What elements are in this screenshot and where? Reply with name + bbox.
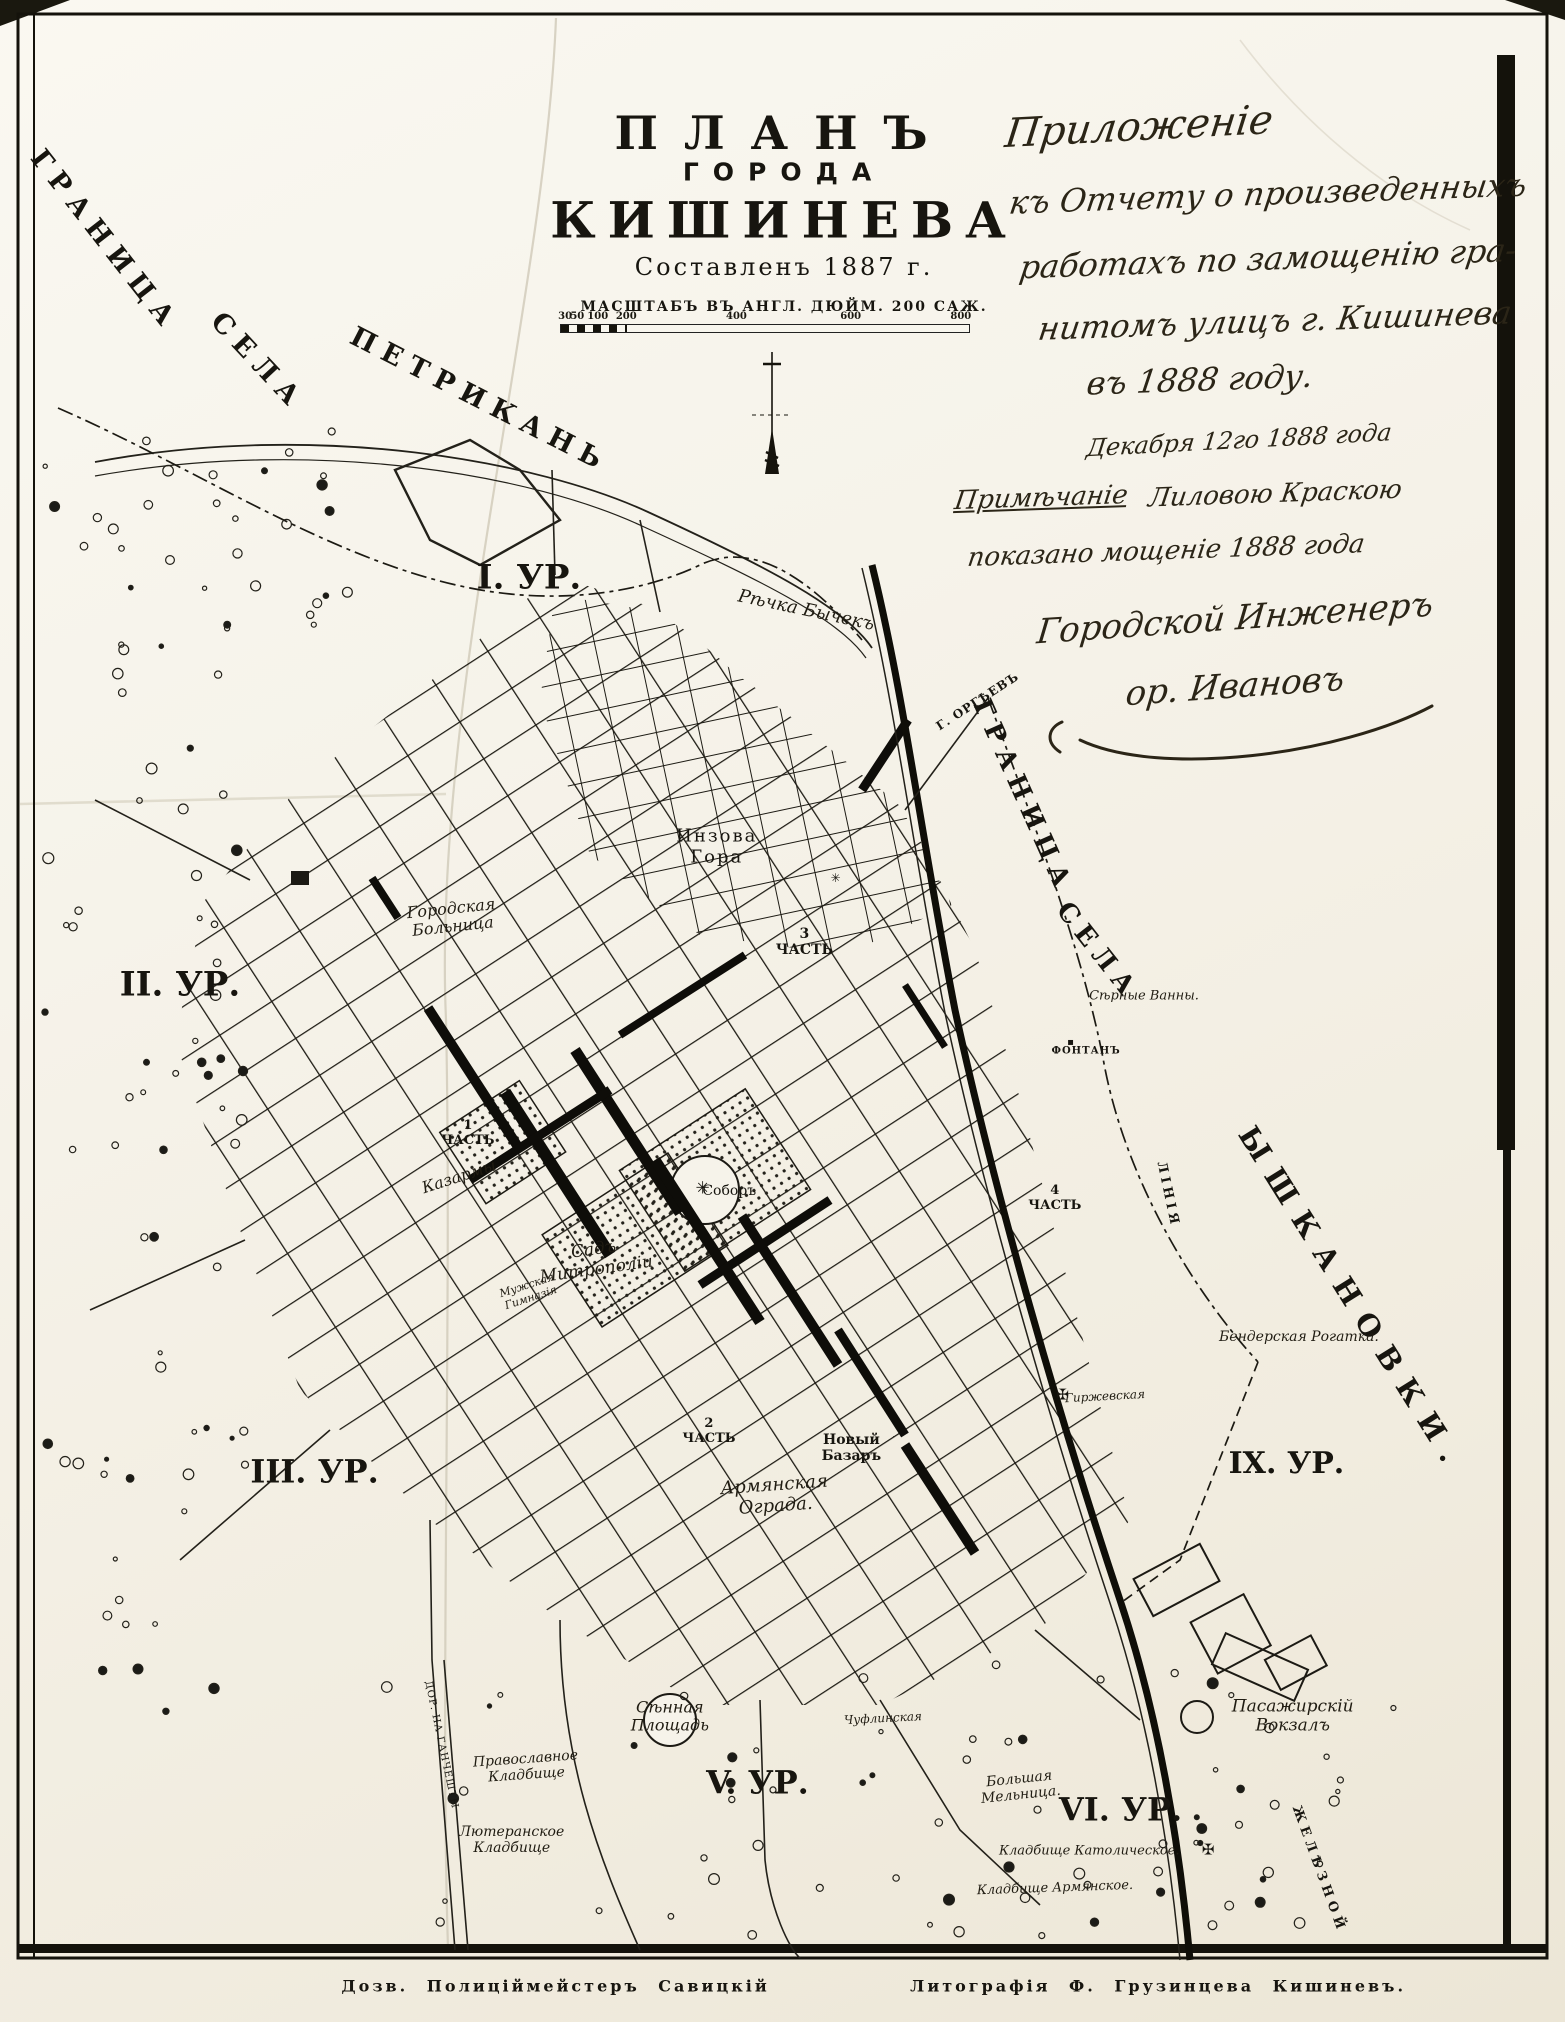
label-district-2: II. УР.	[120, 965, 240, 1004]
fountain-dot-icon: ▪	[1067, 1038, 1074, 1048]
label-granitsa-petrikan-1: ГРАНИЦА	[24, 143, 186, 338]
label-sobor: Соборъ	[702, 1183, 756, 1199]
label-gorodskaya-bolnitsa: Городская Больница	[406, 895, 498, 941]
blagoveshchenskaya-cross-icon: ✳	[831, 872, 841, 884]
label-pasazhirsky-vokzal: Пасажирскій Вокзалъ	[1232, 1697, 1354, 1736]
label-kladbishche-katolicheskoye: Кладбище Католическое.	[999, 1845, 1180, 1860]
label-district-5: V. УР.	[706, 1765, 809, 1802]
label-pravoslavnoye-kladbishche: Православное Кладбище	[472, 1747, 579, 1786]
label-3-chast: 3 ЧАСТЬ	[776, 926, 833, 958]
label-benderskaya-rogatka: Бендерская Рогатка.	[1219, 1328, 1379, 1344]
map-scan-page: ПЛАНЪ ГОРОДА КИШИНЕВА Составленъ 1887 г.…	[0, 0, 1565, 2022]
label-2-chast: 2 ЧАСТЬ	[682, 1417, 735, 1447]
label-liniya: ЛІНІЯ	[1153, 1160, 1182, 1229]
label-bolshaya-melnitsa: Большая Мельница.	[979, 1767, 1062, 1807]
label-kladbishche-armyanskoye: Кладбище Армянское.	[976, 1878, 1133, 1898]
caption-policemaster: Дозв. Полиціймейстеръ Савицкій	[341, 1976, 769, 1995]
label-dor-na-gancheshty: ДОР. НА ГАНЧЕШТЫ	[422, 1680, 460, 1810]
label-district-1: I. УР.	[477, 559, 582, 598]
label-granitsa-sela-1: ГРАНИЦА	[966, 695, 1079, 899]
label-girzhevskaya: Гиржевская	[1065, 1388, 1146, 1406]
label-district-9: IX. УР.	[1229, 1447, 1345, 1482]
label-syennaya-ploshchad: Сѣнная Площадь	[631, 1698, 709, 1735]
label-yshkanovki: ЫШКАНОВКИ.	[1231, 1121, 1473, 1480]
label-district-3: III. УР.	[250, 1454, 378, 1491]
label-1-chast: 1 ЧАСТЬ	[441, 1119, 494, 1149]
label-armyanskaya-ograda: Армянская Ограда.	[720, 1472, 830, 1521]
label-lyuteranskoye-kladbishche: Лютеранское Кладбище	[459, 1824, 564, 1856]
map-labels: ГРАНИЦАСЕЛАПЕТРИКАНЬГРАНИЦАСЕЛАЫШКАНОВКИ…	[0, 0, 1565, 2022]
cathedral-star-icon: ✳	[696, 1180, 710, 1197]
label-district-6: VI. УР.	[1059, 1791, 1182, 1828]
label-zheleznoy: ЖЕЛѢЗНОЙ	[1288, 1804, 1348, 1936]
label-muzhskaya-gimnaziya: Мужская Гимназія	[498, 1271, 560, 1313]
label-kazarmy: Казармы	[419, 1156, 498, 1197]
label-granitsa-petrikan-3: ПЕТРИКАНЬ	[345, 321, 615, 479]
label-fontan: ФОНТАНЪ	[1051, 1046, 1120, 1058]
label-syernye-vanny: Сѣрные Ванны.	[1089, 989, 1199, 1004]
caption-lithography: Литографія Ф. Грузинцева Кишиневъ.	[910, 1976, 1406, 1995]
label-inzova-gora: Инзова Гора	[676, 827, 757, 868]
label-rechka-bychek: Рѣчка Бычекъ	[736, 586, 876, 635]
catholic-cemetery-cross-icon: ✠	[1202, 1843, 1215, 1858]
label-4-chast: 4 ЧАСТЬ	[1028, 1184, 1081, 1214]
label-granitsa-petrikan-2: СЕЛА	[205, 306, 312, 418]
label-chuflinskaya: Чуфлинская	[843, 1710, 922, 1728]
girzhevskaya-cross-icon: ✠	[1056, 1388, 1069, 1403]
label-novy-bazar: Новый Базаръ	[822, 1432, 882, 1464]
